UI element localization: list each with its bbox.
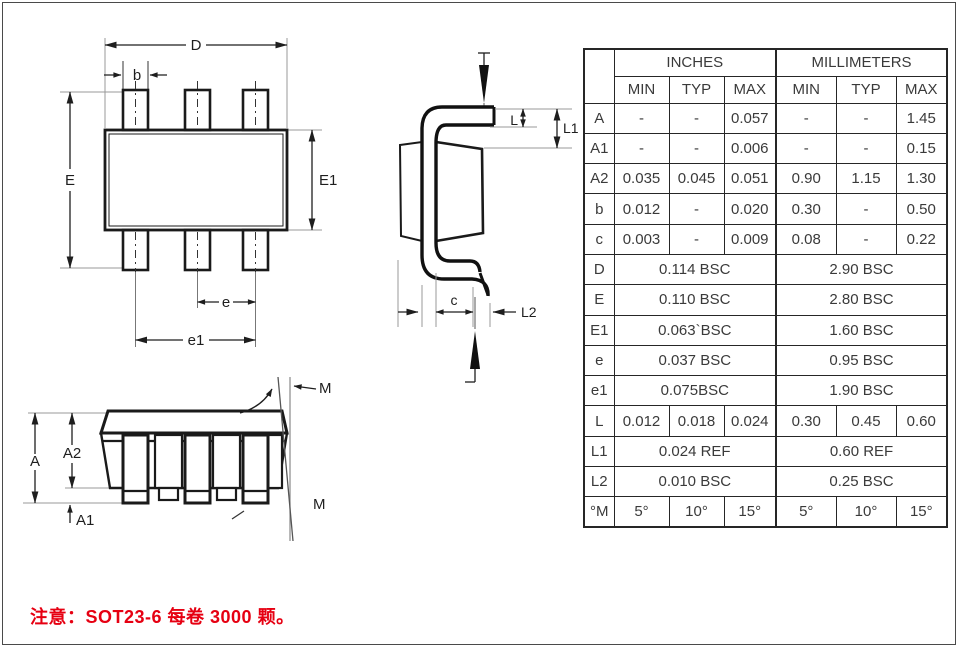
dimension-value: -: [614, 103, 669, 133]
datasheet-page: D b E E1 e e1: [0, 0, 958, 647]
dimension-value: 1.30: [896, 164, 947, 194]
dimension-symbol: c: [584, 224, 614, 254]
dimension-value-inches: 0.114 BSC: [614, 254, 776, 284]
dim-label-A1: A1: [76, 512, 94, 529]
dimension-value-mm: 2.90 BSC: [776, 254, 947, 284]
dimension-value: -: [614, 133, 669, 163]
dimension-value: 1.15: [836, 164, 896, 194]
dimension-symbol: A1: [584, 133, 614, 163]
dimension-value: 0.30: [776, 194, 836, 224]
dimension-row: L10.024 REF0.60 REF: [584, 436, 947, 466]
dimension-value: 0.018: [669, 406, 724, 436]
top-pointer-arrow: [478, 53, 490, 108]
dimension-row: e10.075BSC1.90 BSC: [584, 376, 947, 406]
front-cap: [101, 411, 287, 433]
dimension-value: 10°: [836, 497, 896, 527]
dim-label-L1: L1: [563, 120, 579, 136]
dimension-value-mm: 2.80 BSC: [776, 285, 947, 315]
dimension-value: -: [836, 224, 896, 254]
package-leads: [123, 90, 268, 270]
side-extension-lines: [398, 109, 572, 327]
dimension-value: 0.30: [776, 406, 836, 436]
front-view-drawing: A A2 A1 M M: [10, 373, 355, 548]
corner-cell: [584, 49, 614, 103]
dimension-value: -: [669, 194, 724, 224]
dimension-symbol: D: [584, 254, 614, 284]
dimension-value: 5°: [776, 497, 836, 527]
dimension-row: °M5°10°15°5°10°15°: [584, 497, 947, 527]
dimension-symbol: E1: [584, 315, 614, 345]
dimension-value: 10°: [669, 497, 724, 527]
dimension-row: L0.0120.0180.0240.300.450.60: [584, 406, 947, 436]
dim-label-E: E: [65, 172, 75, 189]
dimension-value: 0.50: [896, 194, 947, 224]
front-dimension-lines: [35, 413, 72, 523]
dimension-value-inches: 0.110 BSC: [614, 285, 776, 315]
dim-label-M-bottom: M: [313, 496, 326, 513]
dimension-value: 0.003: [614, 224, 669, 254]
dimension-value-mm: 0.95 BSC: [776, 345, 947, 375]
col-header: MAX: [724, 76, 776, 103]
dimension-value: 0.051: [724, 164, 776, 194]
dimension-symbol: L2: [584, 467, 614, 497]
dimension-value: 0.006: [724, 133, 776, 163]
foot-leader-tick: [232, 511, 244, 519]
package-body: [105, 130, 287, 230]
dimension-value-mm: 1.60 BSC: [776, 315, 947, 345]
dimension-symbol: e1: [584, 376, 614, 406]
dimension-value: 0.08: [776, 224, 836, 254]
dimension-row: c0.003-0.0090.08-0.22: [584, 224, 947, 254]
dimension-value: 1.45: [896, 103, 947, 133]
dimension-value: 0.15: [896, 133, 947, 163]
dimension-value-inches: 0.037 BSC: [614, 345, 776, 375]
dimension-row: b0.012-0.0200.30-0.50: [584, 194, 947, 224]
dimension-value: 0.22: [896, 224, 947, 254]
dimension-symbol: °M: [584, 497, 614, 527]
dimension-row: E10.063`BSC1.60 BSC: [584, 315, 947, 345]
dimension-value: 0.045: [669, 164, 724, 194]
dimension-value: 0.45: [836, 406, 896, 436]
col-header: MIN: [614, 76, 669, 103]
dimension-value: 5°: [614, 497, 669, 527]
dimension-value-mm: 0.25 BSC: [776, 467, 947, 497]
dimension-value: 0.012: [614, 194, 669, 224]
dimension-value-inches: 0.024 REF: [614, 436, 776, 466]
dim-label-e1: e1: [188, 332, 205, 349]
dimension-value: -: [836, 194, 896, 224]
dim-label-L2: L2: [521, 304, 537, 320]
dimension-value: -: [776, 103, 836, 133]
dimension-symbol: A: [584, 103, 614, 133]
millimeters-header: MILLIMETERS: [776, 49, 947, 76]
front-leads: [123, 435, 268, 503]
dimension-value: 15°: [896, 497, 947, 527]
dimension-symbol: L1: [584, 436, 614, 466]
dimension-table: INCHES MILLIMETERS MIN TYP MAX MIN TYP M…: [583, 48, 948, 528]
dimension-symbol: L: [584, 406, 614, 436]
dimension-value: -: [669, 224, 724, 254]
col-header: MIN: [776, 76, 836, 103]
dimension-value: -: [836, 103, 896, 133]
inches-header: INCHES: [614, 49, 776, 76]
dimension-value: 0.020: [724, 194, 776, 224]
dimension-value: -: [669, 133, 724, 163]
dimension-value: 0.90: [776, 164, 836, 194]
dimension-symbol: A2: [584, 164, 614, 194]
dimension-value: 0.057: [724, 103, 776, 133]
dim-label-A: A: [30, 453, 40, 470]
dimension-symbol: b: [584, 194, 614, 224]
dim-label-e: e: [222, 294, 230, 311]
angle-annotation: [240, 386, 316, 413]
dimension-row: A1--0.006--0.15: [584, 133, 947, 163]
unit-header-row: INCHES MILLIMETERS: [584, 49, 947, 76]
dim-label-A2: A2: [63, 445, 81, 462]
dimension-row: e0.037 BSC0.95 BSC: [584, 345, 947, 375]
dimension-value: 0.012: [614, 406, 669, 436]
dimension-value-mm: 0.60 REF: [776, 436, 947, 466]
dimension-symbol: E: [584, 285, 614, 315]
col-header: TYP: [836, 76, 896, 103]
dimension-value: -: [836, 133, 896, 163]
packing-note: 注意：SOT23-6 每卷 3000 颗。: [30, 603, 295, 629]
dim-label-c: c: [451, 292, 458, 308]
dim-label-E1: E1: [319, 172, 337, 189]
dimension-row: L20.010 BSC0.25 BSC: [584, 467, 947, 497]
dimension-value: -: [669, 103, 724, 133]
side-body: [400, 142, 483, 241]
dim-label-D: D: [191, 37, 202, 54]
dimension-value: 15°: [724, 497, 776, 527]
dimension-row: E0.110 BSC2.80 BSC: [584, 285, 947, 315]
dimension-value: 0.024: [724, 406, 776, 436]
dimension-row: A20.0350.0450.0510.901.151.30: [584, 164, 947, 194]
dim-label-L: L: [510, 112, 518, 128]
col-header: TYP: [669, 76, 724, 103]
dimension-value: 0.60: [896, 406, 947, 436]
dimension-value-inches: 0.063`BSC: [614, 315, 776, 345]
dimension-value: 0.009: [724, 224, 776, 254]
min-typ-max-header-row: MIN TYP MAX MIN TYP MAX: [584, 76, 947, 103]
top-view-drawing: D b E E1 e e1: [40, 25, 340, 370]
dimension-value: 0.035: [614, 164, 669, 194]
dimension-value-inches: 0.010 BSC: [614, 467, 776, 497]
dimension-symbol: e: [584, 345, 614, 375]
col-header: MAX: [896, 76, 947, 103]
dimension-value: -: [776, 133, 836, 163]
side-view-drawing: L L1 c L2: [382, 45, 578, 390]
dimension-row: D0.114 BSC2.90 BSC: [584, 254, 947, 284]
dim-label-b: b: [133, 67, 141, 84]
dim-label-M-top: M: [319, 380, 332, 397]
dimension-value-inches: 0.075BSC: [614, 376, 776, 406]
dimension-value-mm: 1.90 BSC: [776, 376, 947, 406]
dimension-row: A--0.057--1.45: [584, 103, 947, 133]
